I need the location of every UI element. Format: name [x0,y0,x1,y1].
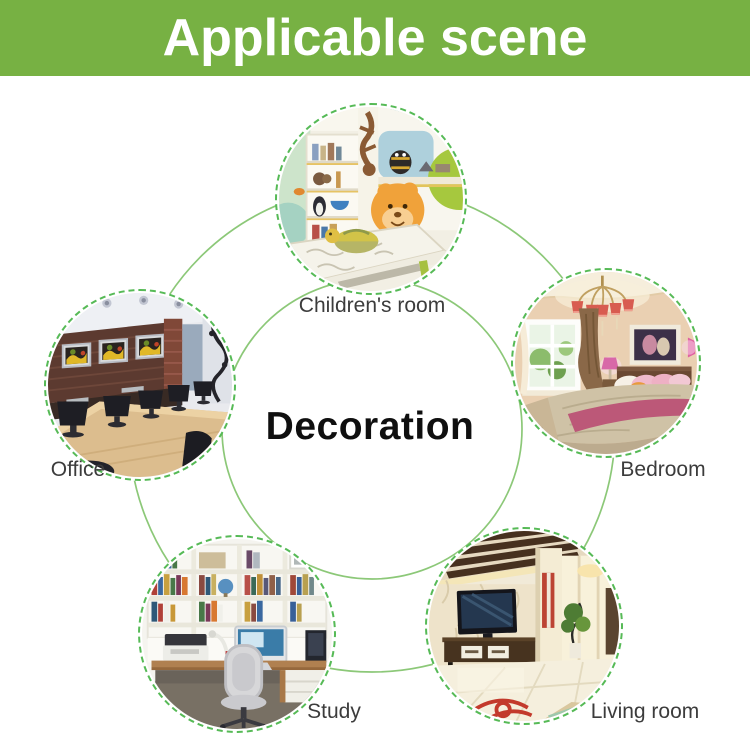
scene-circle-living-room [425,527,623,725]
office-photo [48,293,232,477]
bedroom-photo [515,272,697,454]
scene-label-study: Study [307,700,361,724]
scene-label-living-room: Living room [591,700,700,724]
scene-circle-bedroom [511,268,701,458]
scene-label-office: Office [51,458,105,482]
scene-label-children-room: Children's room [299,294,445,318]
applicable-scene-graphic: Applicable scene Decoration [0,0,750,750]
study-photo [142,539,332,729]
center-title: Decoration [266,405,475,449]
scene-circle-office [44,289,236,481]
living-room-photo [429,531,619,721]
scene-label-bedroom: Bedroom [620,458,705,482]
children-room-photo [279,107,463,291]
scene-circle-children-room [275,103,467,295]
